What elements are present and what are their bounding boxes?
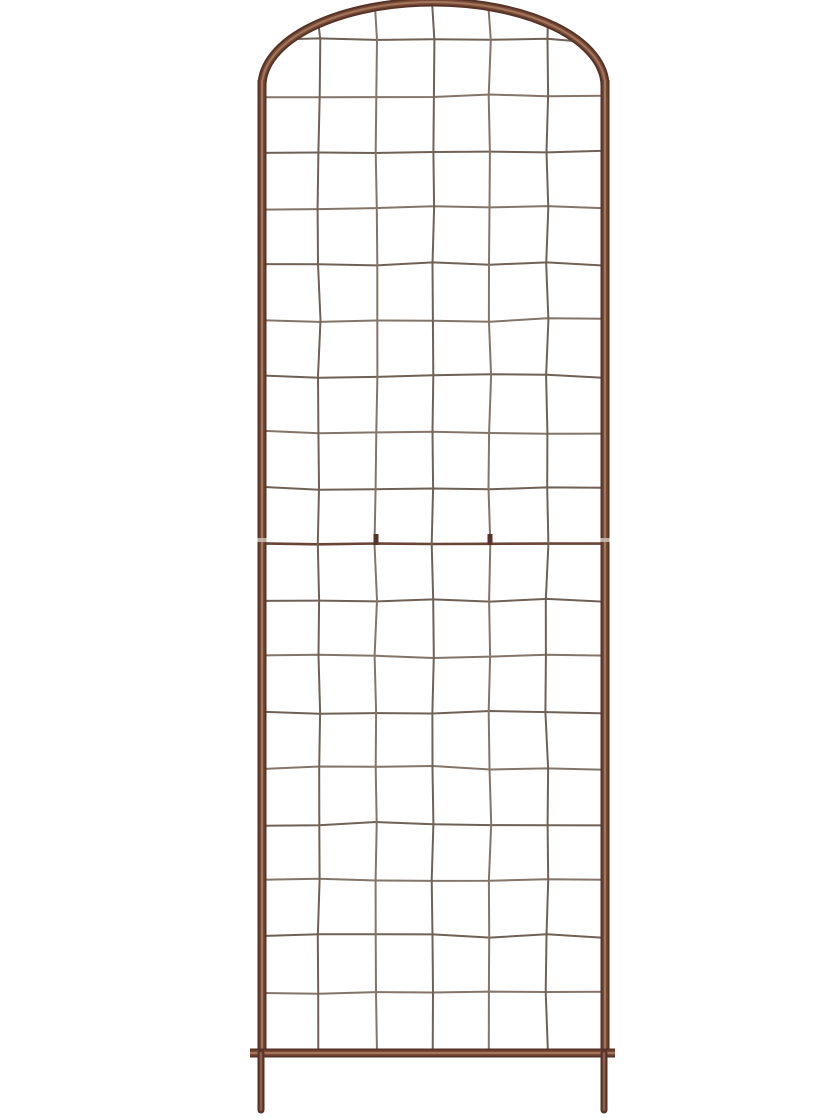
rail-section-joint xyxy=(601,538,610,542)
joint-clip xyxy=(374,534,379,545)
joint-clip xyxy=(488,534,493,545)
trellis-illustration xyxy=(0,0,840,1120)
product-photo xyxy=(0,0,840,1120)
rail-section-joint xyxy=(258,538,267,542)
photo-background xyxy=(0,0,840,1120)
joint-wire xyxy=(262,543,605,544)
